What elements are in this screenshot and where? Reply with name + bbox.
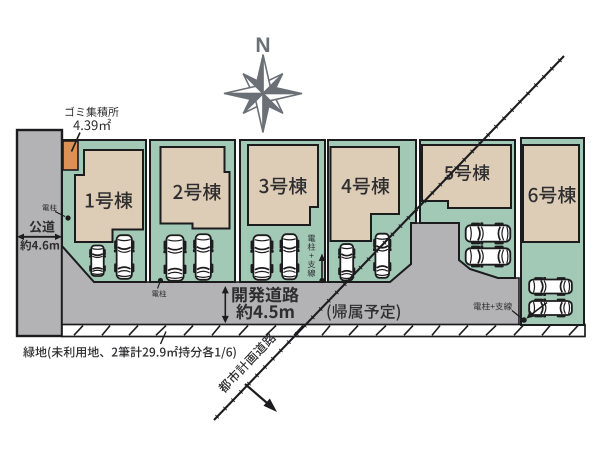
svg-text:N: N [255, 34, 270, 57]
